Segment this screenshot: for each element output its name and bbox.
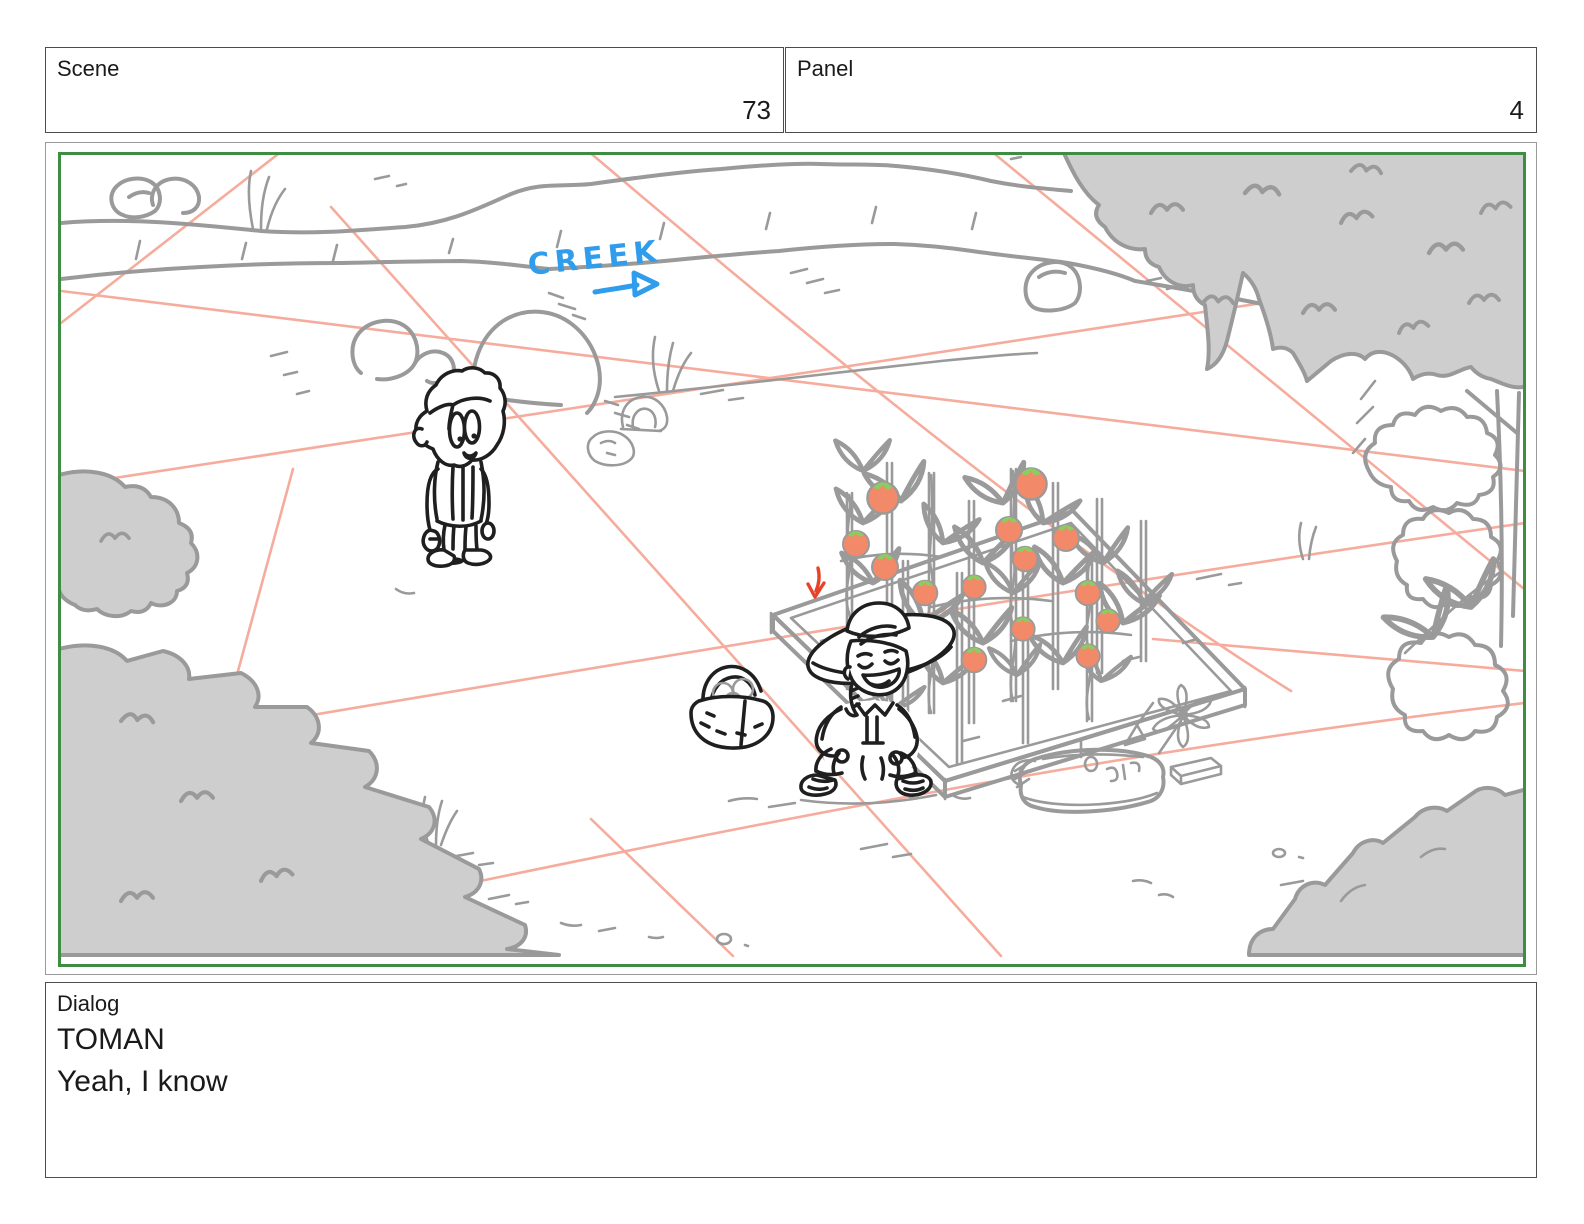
- storyboard-drawing: CREEK: [46, 143, 1538, 976]
- red-pointer-arrow: [808, 568, 824, 597]
- panel-number: 4: [1510, 95, 1524, 126]
- right-bushes: [1353, 381, 1519, 739]
- storyboard-sheet: Scene 73 Panel 4: [0, 0, 1584, 1224]
- dialog-field: Dialog TOMAN Yeah, I know: [45, 982, 1537, 1178]
- left-bushes: [57, 471, 559, 955]
- standing-kid: [414, 368, 505, 566]
- panel-field: Panel 4: [785, 47, 1537, 133]
- dialog-character: TOMAN: [57, 1023, 165, 1057]
- creek-flow-arrow: [595, 273, 657, 295]
- scene-label: Scene: [57, 56, 119, 82]
- storyboard-panel: CREEK: [45, 142, 1537, 975]
- panel-label: Panel: [797, 56, 853, 82]
- harvest-basket: [691, 667, 773, 749]
- tree-canopy: [1063, 151, 1527, 387]
- fertilizer-bag: [1011, 750, 1163, 812]
- dialog-label: Dialog: [57, 991, 119, 1017]
- bottom-right-bush: [1249, 788, 1527, 955]
- scene-number: 73: [742, 95, 771, 126]
- brick: [1171, 758, 1221, 784]
- creek-annotation: CREEK: [526, 234, 663, 295]
- scene-field: Scene 73: [45, 47, 784, 133]
- dialog-line: Yeah, I know: [57, 1065, 228, 1099]
